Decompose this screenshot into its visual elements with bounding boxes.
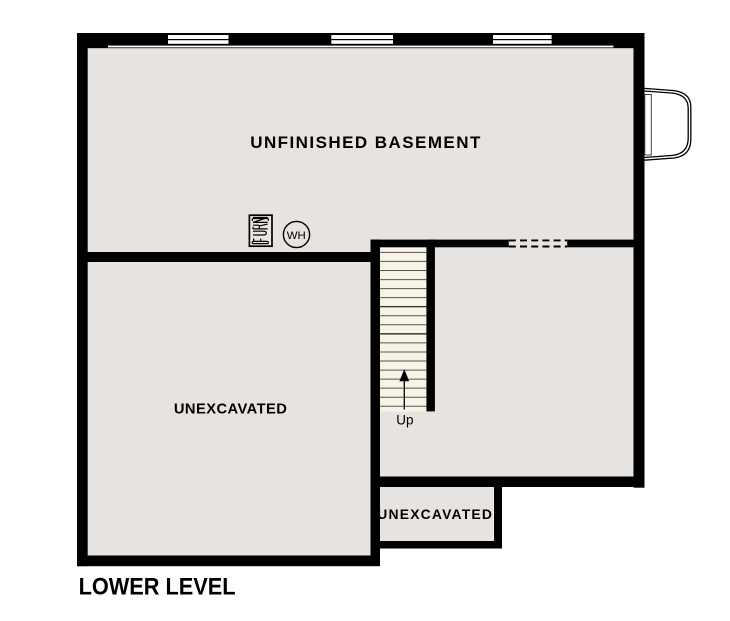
svg-text:UNEXCAVATED: UNEXCAVATED (174, 401, 287, 417)
svg-text:UNEXCAVATED: UNEXCAVATED (377, 506, 493, 522)
svg-text:Up: Up (396, 412, 413, 427)
svg-text:UNFINISHED BASEMENT: UNFINISHED BASEMENT (250, 133, 482, 152)
svg-text:LOWER LEVEL: LOWER LEVEL (79, 574, 236, 601)
svg-text:WH: WH (287, 230, 306, 242)
